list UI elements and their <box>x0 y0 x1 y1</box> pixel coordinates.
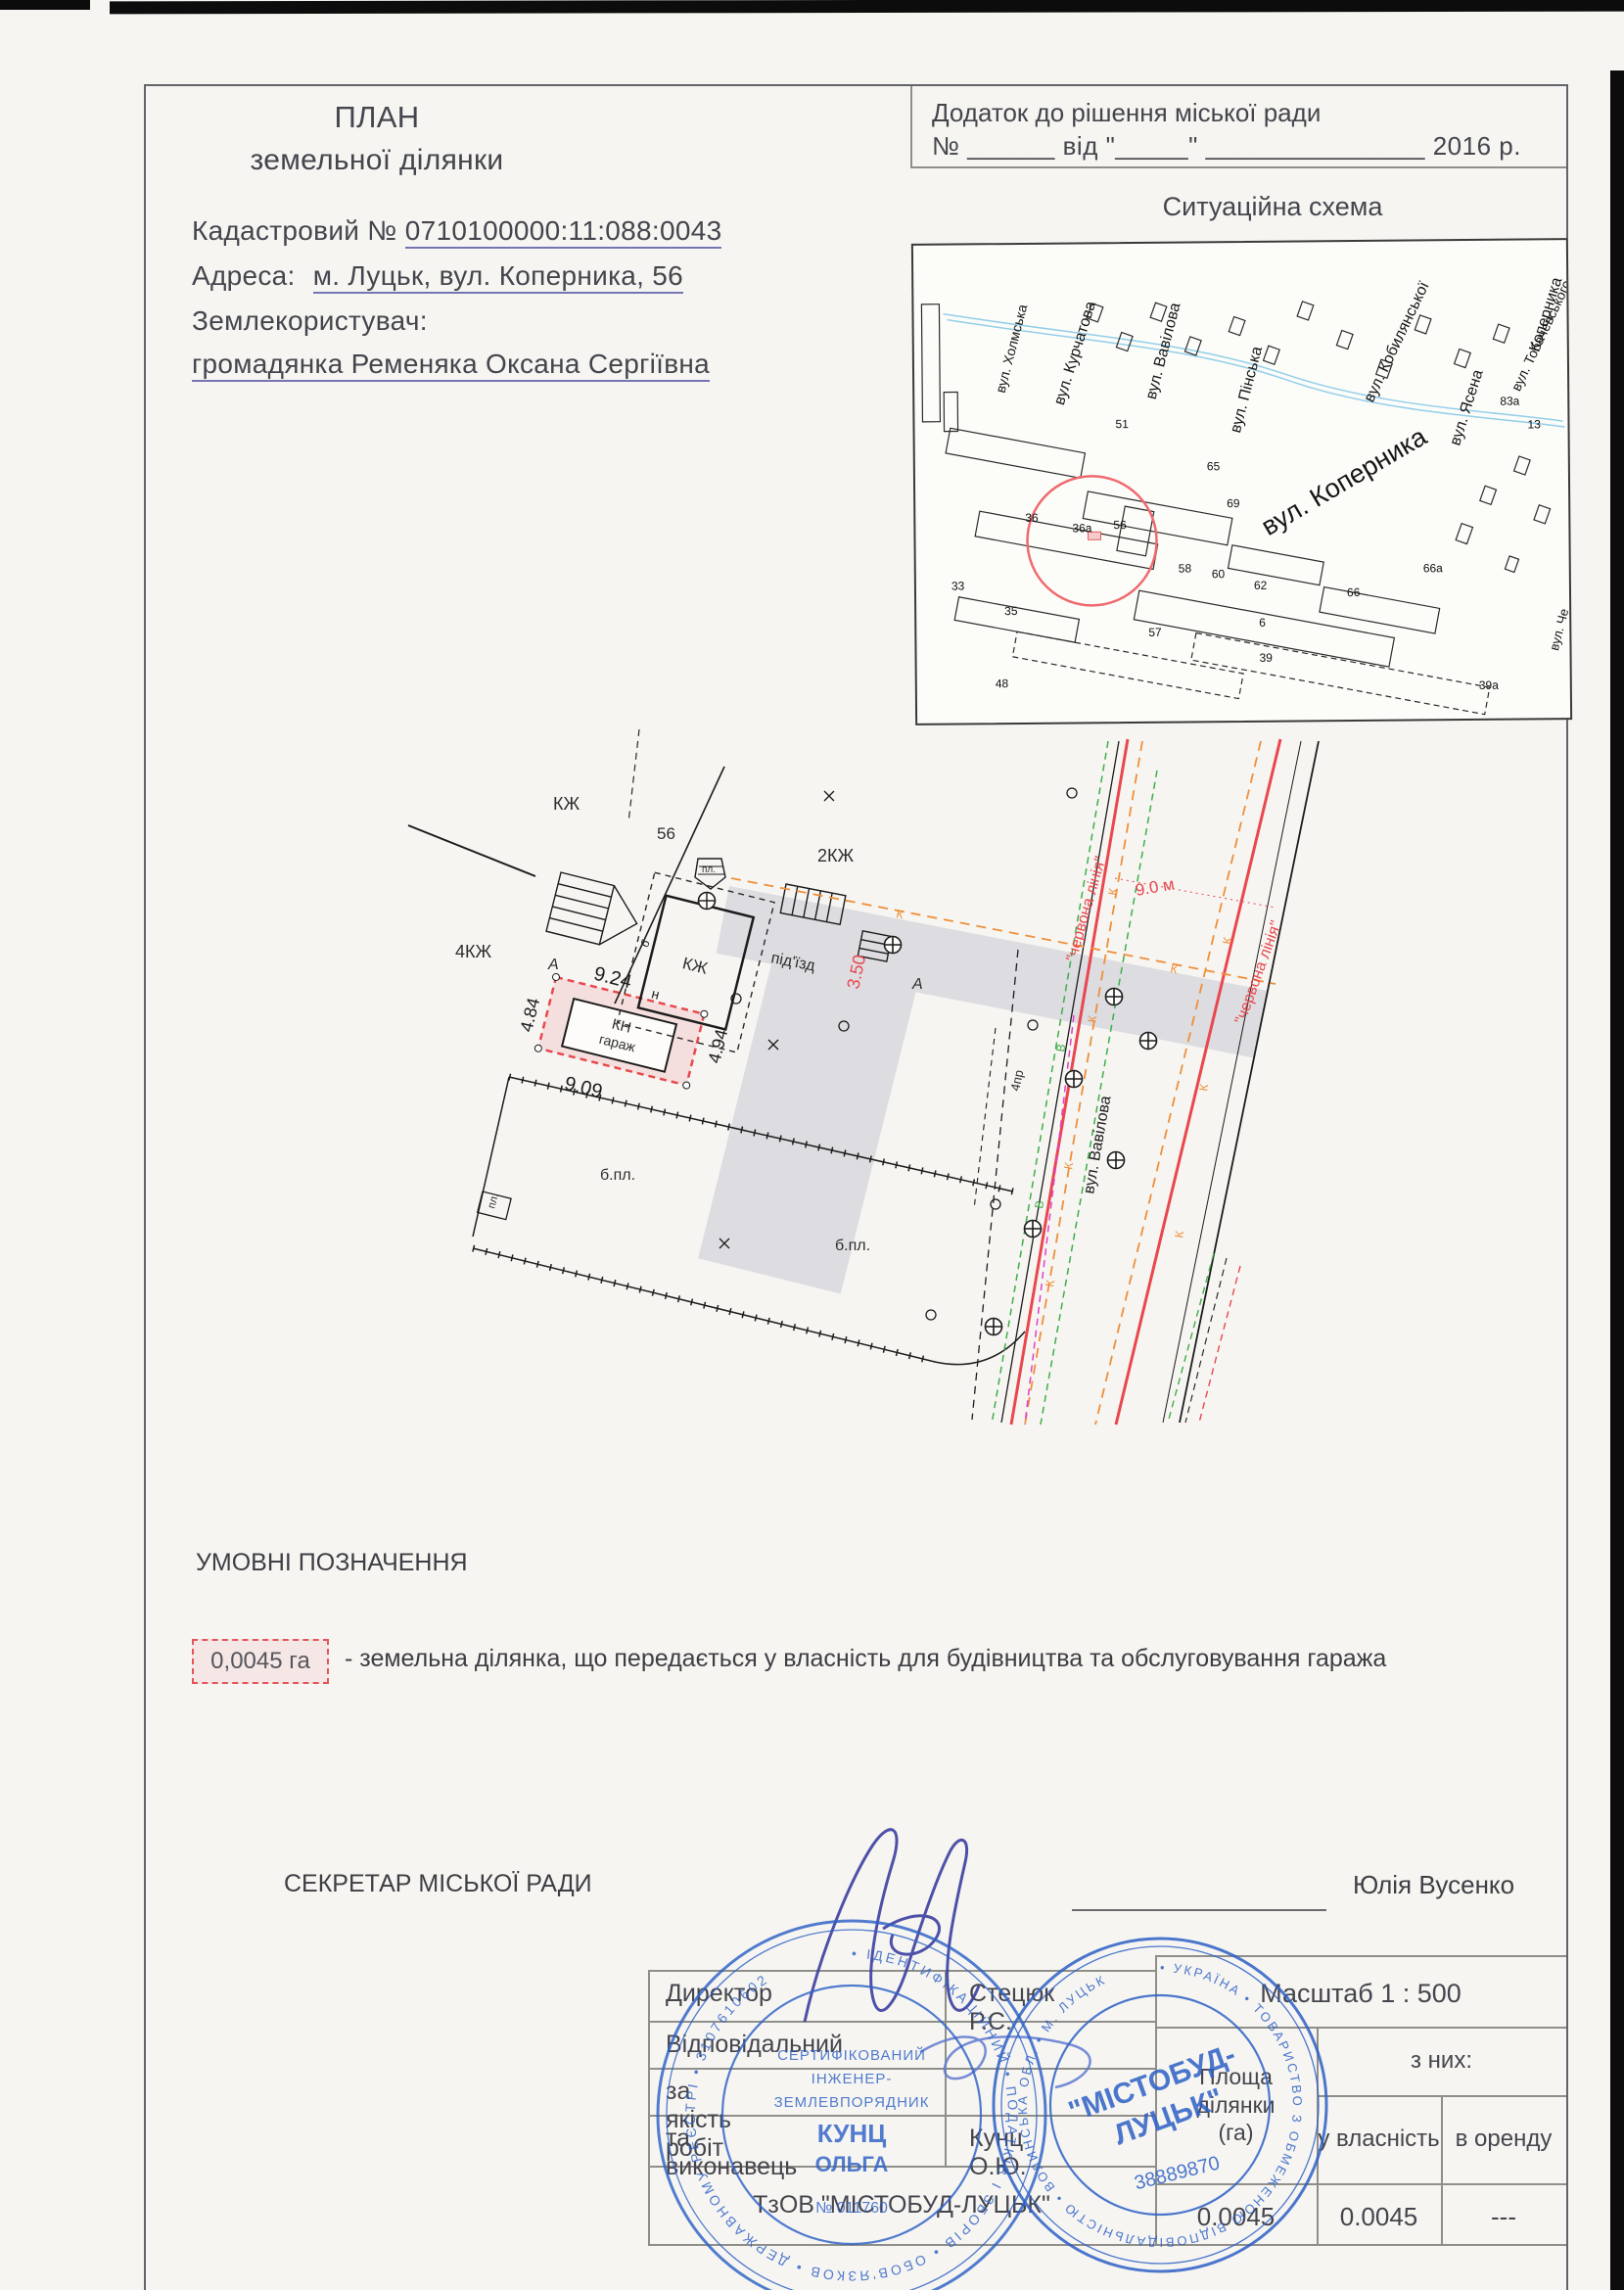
svg-text:66: 66 <box>1347 585 1361 599</box>
cadastral-label: Кадастровий № <box>192 215 397 246</box>
svg-text:48: 48 <box>996 677 1009 690</box>
bpl-label-1: б.пл. <box>600 1167 635 1184</box>
stamp-engineer-line2: ІНЖЕНЕР- <box>812 2071 893 2087</box>
stamp-engineer-name1: КУНЦ <box>817 2119 886 2148</box>
cadastral-line: Кадастровий № 0710100000:11:088:0043 <box>192 215 721 247</box>
svg-text:К: К <box>1196 1083 1211 1092</box>
svg-text:58: 58 <box>1179 561 1192 575</box>
label-2kzh: 2КЖ <box>817 846 854 865</box>
svg-text:вул. Пінська: вул. Пінська <box>1228 345 1266 435</box>
address-line: Адреса: м. Луцьк, вул. Коперника, 56 <box>192 260 683 292</box>
landuser-name: громадянка Ременяка Оксана Сергіївна <box>192 349 710 382</box>
svg-text:60: 60 <box>1212 567 1226 581</box>
svg-text:• ІДЕНТИФІКАЦІЙНИЙ • ПОДАТКІВ: • ІДЕНТИФІКАЦІЙНИЙ • ПОДАТКІВ І ЗБОРІВ •… <box>682 1945 1021 2284</box>
map-street-labels: вул. Вавілова вул. Пінська вул. Кобилянс… <box>992 275 1570 657</box>
dwelling-label: КЖ <box>680 954 710 978</box>
stamp-company: • УКРАЇНА • ТОВАРИСТВО З ОБМЕЖЕНОЮ ВІДПО… <box>994 1939 1326 2271</box>
label-4pr: 4пр <box>1007 1068 1026 1092</box>
svg-text:66а: 66а <box>1423 561 1443 575</box>
stamp-engineer-name2: ОЛЬГА <box>815 2152 889 2176</box>
dim-right: 4.94 <box>704 1027 731 1065</box>
table-lease-header: в оренду <box>1441 2115 1566 2164</box>
svg-text:К: К <box>1043 1279 1057 1287</box>
stamp-engineer-number: № 011760 <box>815 2200 888 2217</box>
svg-text:39а: 39а <box>1479 678 1499 692</box>
svg-text:57: 57 <box>1148 626 1162 639</box>
svg-text:К: К <box>895 907 905 921</box>
page-title: ПЛАН <box>186 100 568 135</box>
svg-text:36: 36 <box>1025 511 1039 525</box>
svg-text:вул. Вавілова: вул. Вавілова <box>1143 301 1184 400</box>
svg-text:36а: 36а <box>1072 521 1091 535</box>
annex-line2: № ______ від "_____" _______________ 201… <box>932 131 1558 162</box>
situation-map-title: Ситуаційна схема <box>1057 192 1488 222</box>
label-4kzh: 4КЖ <box>455 942 491 961</box>
svg-text:33: 33 <box>951 579 965 592</box>
landuser-label: Землекористувач: <box>192 305 428 337</box>
svg-text:вул. Курчатова: вул. Курчатова <box>1051 300 1099 407</box>
annex-divider-vertical <box>910 86 912 168</box>
svg-text:вул. Ясена: вул. Ясена <box>1447 368 1486 448</box>
label-56: 56 <box>657 824 675 843</box>
legend-area-box: 0,0045 га <box>192 1639 329 1684</box>
plot-plan-drawing: КН гараж 9.24 н 9.09 КЖ б 4.84 4.9 <box>387 700 1326 1464</box>
cadastral-number: 0710100000:11:088:0043 <box>405 215 722 249</box>
svg-text:К: К <box>1061 1161 1076 1170</box>
svg-text:62: 62 <box>1254 579 1268 592</box>
svg-text:56: 56 <box>1113 518 1127 532</box>
label-a2: А <box>911 976 923 993</box>
stamp-engineer: • ІДЕНТИФІКАЦІЙНИЙ • ПОДАТКІВ І ЗБОРІВ •… <box>658 1921 1045 2290</box>
annex-divider-horizontal <box>910 166 1566 168</box>
table-area-lease: --- <box>1441 2193 1566 2240</box>
scan-edge-top-left <box>0 0 90 10</box>
svg-text:вул. Кобилянської: вул. Кобилянської <box>1362 279 1433 405</box>
svg-text:65: 65 <box>1207 459 1221 473</box>
table-of-them: з них: <box>1317 2038 1566 2083</box>
red-dim-label: 9.0 м <box>1134 874 1176 900</box>
stamp-engineer-line1: СЕРТИФІКОВАНИЙ <box>777 2046 926 2064</box>
landuser-value: громадянка Ременяка Оксана Сергіївна <box>192 349 710 380</box>
secretary-label: СЕКРЕТАР МІСЬКОЇ РАДИ <box>284 1870 592 1898</box>
dim-bottom: 9.09 <box>562 1073 604 1103</box>
scan-edge-right <box>1610 70 1624 2290</box>
svg-text:83а: 83а <box>1500 395 1519 408</box>
svg-text:вул. Коперника: вул. Коперника <box>1256 421 1432 541</box>
label-kzh-area: КЖ <box>553 794 580 814</box>
svg-text:пл.: пл. <box>702 865 716 875</box>
page-subtitle: земельної ділянки <box>186 144 568 177</box>
svg-text:В: В <box>1032 1199 1046 1209</box>
stairs-structure <box>546 872 644 952</box>
bpl-label-2: б.пл. <box>835 1238 870 1254</box>
svg-text:К: К <box>1105 887 1120 896</box>
stamp-company-code: 38889870 <box>1133 2152 1223 2194</box>
svg-text:К: К <box>1172 1230 1186 1238</box>
svg-text:69: 69 <box>1227 496 1240 510</box>
stamps-overlay: • ІДЕНТИФІКАЦІЙНИЙ • ПОДАТКІВ І ЗБОРІВ •… <box>626 1811 1351 2290</box>
scanned-land-plan-page: ПЛАН земельної ділянки Кадастровий № 071… <box>0 0 1624 2290</box>
secretary-name: Юлія Вусенко <box>1353 1870 1514 1900</box>
label-a1: А <box>547 957 559 973</box>
svg-text:39: 39 <box>1260 651 1274 665</box>
street-name: вул. Вавілова <box>1081 1095 1114 1195</box>
situation-map: вул. Вавілова вул. Пінська вул. Кобилянс… <box>911 238 1572 725</box>
legend-title: УМОВНІ ПОЗНАЧЕННЯ <box>196 1549 468 1577</box>
dim-left: 4.84 <box>516 996 543 1034</box>
svg-text:35: 35 <box>1004 604 1018 618</box>
stamp-engineer-line3: ЗЕМЛЕВПОРЯДНИК <box>774 2094 930 2111</box>
pl-label-2: пл. <box>486 1192 501 1210</box>
boundary-left <box>408 825 535 876</box>
svg-text:вул. Холмська: вул. Холмська <box>993 303 1031 395</box>
svg-text:6: 6 <box>1259 616 1266 630</box>
boundary-dashed-top <box>628 729 639 822</box>
annex-line1: Додаток до рішення міської ради <box>932 98 1321 128</box>
legend-description: - земельна ділянка, що передається у вла… <box>345 1645 1519 1673</box>
svg-text:Коперника: Коперника <box>1526 275 1565 353</box>
svg-text:51: 51 <box>1115 417 1129 431</box>
svg-text:вул. Че: вул. Че <box>1547 607 1570 652</box>
scan-edge-top <box>110 0 1624 14</box>
svg-text:13: 13 <box>1527 417 1541 431</box>
address-value: м. Луцьк, вул. Коперника, 56 <box>313 260 683 294</box>
dim-top-n: н <box>650 985 661 1002</box>
address-label: Адреса: <box>192 260 296 291</box>
